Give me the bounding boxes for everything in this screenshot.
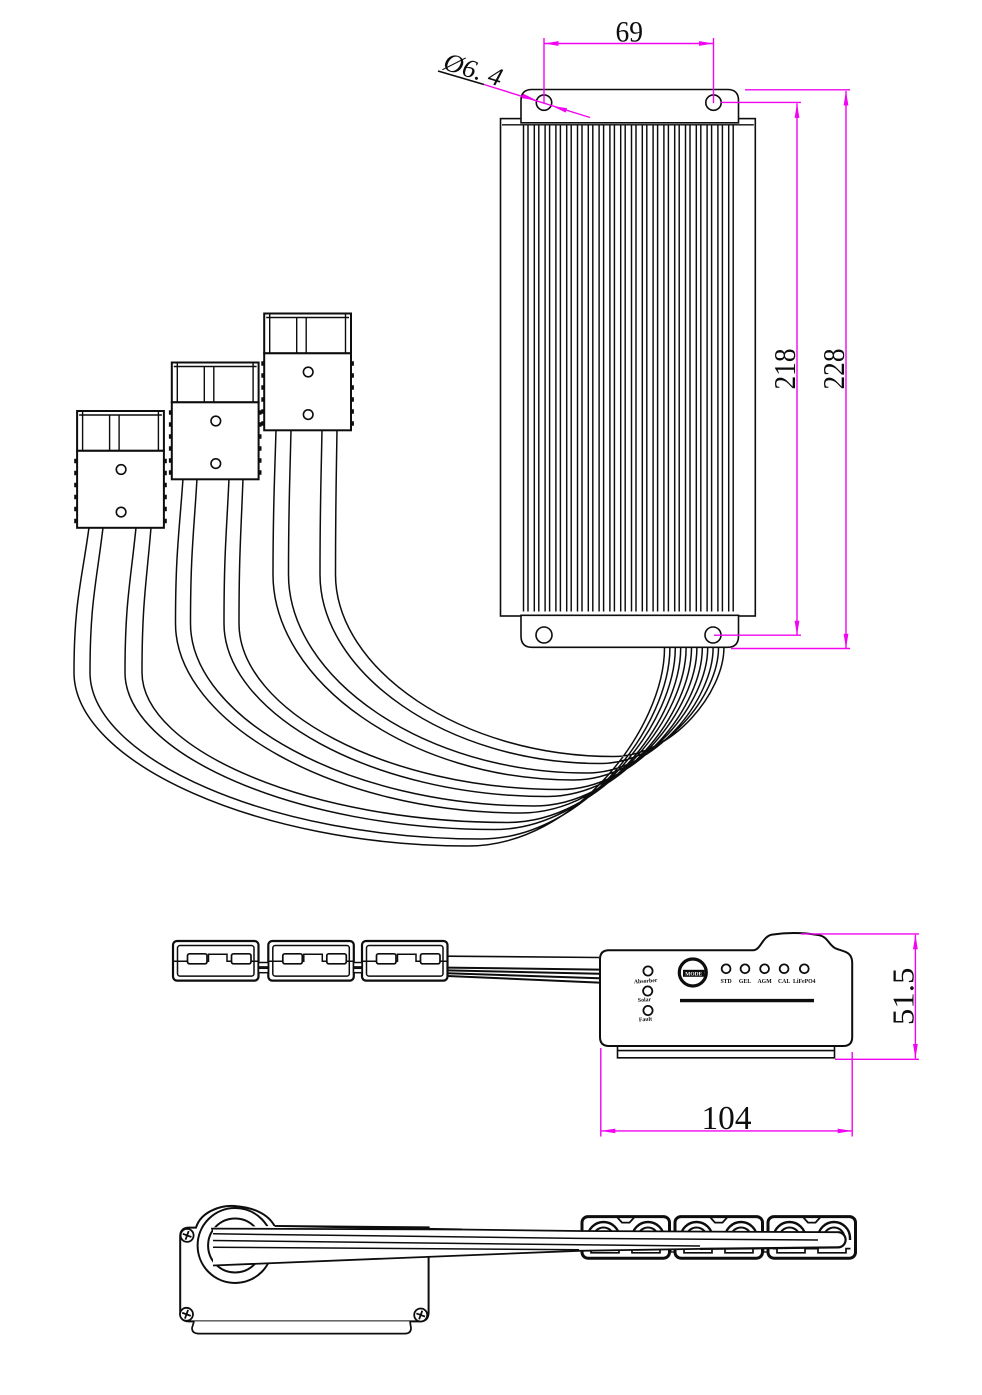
svg-text:Solar: Solar [638,997,652,1004]
svg-text:Fault: Fault [639,1017,653,1024]
svg-text:104: 104 [702,1100,752,1137]
svg-text:AGM: AGM [758,979,773,985]
svg-text:GEL: GEL [739,979,751,985]
svg-text:LiFePO4: LiFePO4 [793,979,816,985]
svg-text:218: 218 [767,349,802,390]
svg-text:CAL: CAL [778,979,790,985]
svg-text:MODE: MODE [685,972,702,978]
svg-text:STD: STD [720,979,731,985]
svg-text:51.5: 51.5 [886,968,921,1026]
svg-text:228: 228 [816,349,851,390]
svg-text:69: 69 [616,16,644,49]
